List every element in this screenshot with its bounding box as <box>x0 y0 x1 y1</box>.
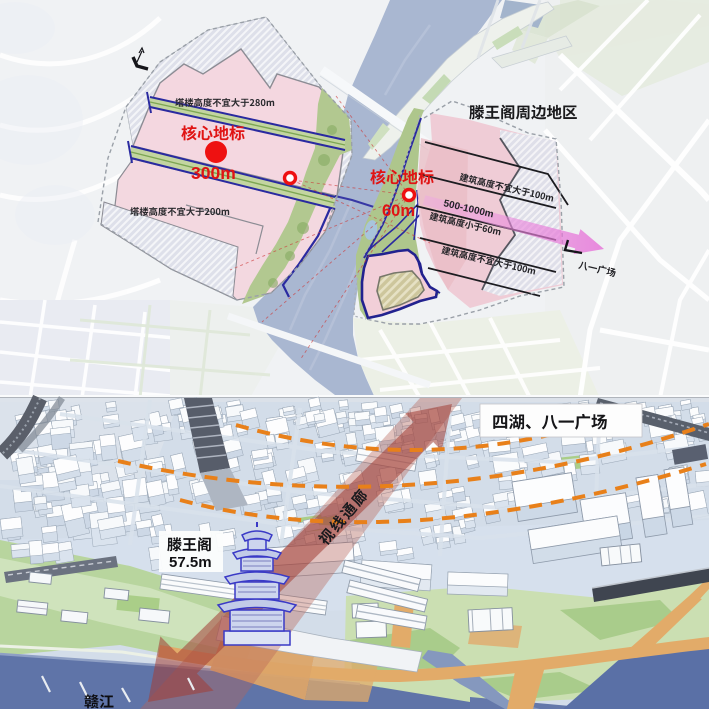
svg-text:60m: 60m <box>382 202 415 220</box>
svg-text:57.5m: 57.5m <box>169 554 212 571</box>
svg-text:300m: 300m <box>191 163 236 183</box>
